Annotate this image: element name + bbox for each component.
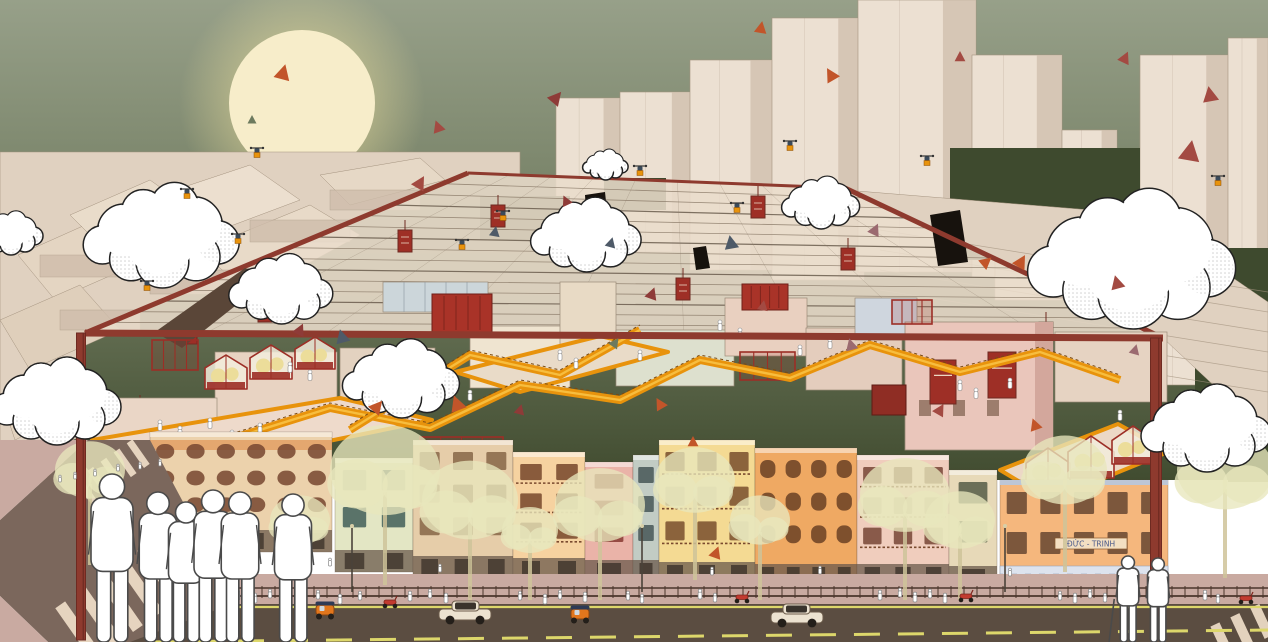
pedestrian bbox=[626, 591, 629, 600]
pedestrian bbox=[1088, 589, 1091, 598]
pedestrian bbox=[117, 464, 120, 471]
pedestrian bbox=[268, 589, 271, 598]
pedestrian bbox=[338, 594, 342, 604]
pedestrian bbox=[943, 593, 947, 603]
red-kiosk bbox=[872, 385, 906, 415]
pedestrian bbox=[878, 590, 882, 600]
illustration-stage: ĐỨC - TRINH bbox=[0, 0, 1268, 642]
pedestrian bbox=[59, 475, 62, 482]
pedestrian bbox=[1203, 590, 1207, 600]
pedestrian bbox=[1216, 594, 1219, 603]
pedestrian bbox=[1008, 568, 1011, 576]
pedestrian bbox=[898, 588, 901, 597]
pedestrian bbox=[583, 592, 587, 602]
pedestrian bbox=[74, 472, 77, 479]
pedestrian bbox=[928, 589, 931, 598]
pedestrian bbox=[358, 591, 361, 600]
pedestrian bbox=[328, 558, 331, 566]
pedestrian bbox=[698, 589, 702, 599]
red-pergola bbox=[892, 300, 932, 324]
pedestrian bbox=[1058, 591, 1061, 600]
pedestrian bbox=[913, 592, 917, 602]
pedestrian bbox=[710, 567, 713, 575]
red-container bbox=[432, 294, 492, 332]
city-block-illustration: ĐỨC - TRINH bbox=[0, 0, 1268, 642]
pedestrian bbox=[316, 590, 319, 599]
pedestrian bbox=[640, 594, 643, 603]
pedestrian bbox=[444, 593, 448, 603]
pedestrian bbox=[543, 594, 547, 604]
pedestrian bbox=[159, 459, 162, 466]
pedestrian bbox=[1103, 593, 1106, 602]
pedestrian bbox=[558, 590, 561, 599]
pedestrian bbox=[139, 462, 142, 469]
pedestrian bbox=[94, 469, 97, 476]
pedestrian bbox=[438, 564, 441, 572]
pink-tower bbox=[905, 322, 1053, 450]
pedestrian bbox=[408, 591, 412, 601]
frame-front-beam bbox=[85, 333, 1163, 338]
awning bbox=[1000, 566, 1168, 574]
shop-sign-text: ĐỨC - TRINH bbox=[1067, 540, 1115, 549]
pedestrian bbox=[818, 566, 821, 574]
pedestrian bbox=[713, 593, 716, 602]
red-pergola bbox=[152, 340, 198, 370]
pedestrian bbox=[1073, 593, 1077, 603]
pedestrian bbox=[518, 591, 521, 600]
foreground-figure bbox=[1146, 558, 1170, 642]
pedestrian bbox=[428, 589, 431, 598]
